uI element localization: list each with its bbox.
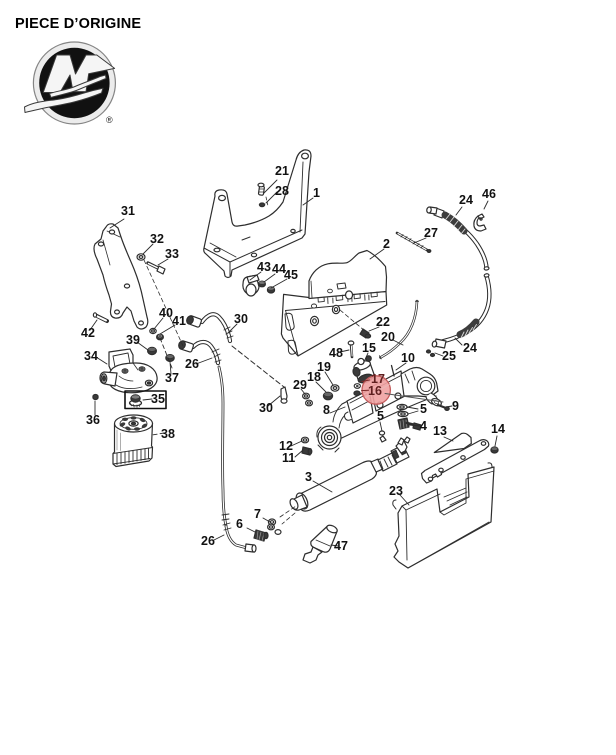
svg-text:38: 38 (161, 427, 175, 441)
svg-text:22: 22 (376, 315, 390, 329)
svg-text:9: 9 (452, 399, 459, 413)
svg-text:10: 10 (401, 351, 415, 365)
svg-text:30: 30 (234, 312, 248, 326)
svg-text:15: 15 (362, 341, 376, 355)
svg-text:11: 11 (282, 451, 295, 465)
svg-text:4: 4 (420, 419, 427, 433)
svg-text:18: 18 (307, 370, 321, 384)
svg-text:47: 47 (334, 539, 348, 553)
svg-text:45: 45 (284, 268, 298, 282)
svg-text:42: 42 (81, 326, 95, 340)
svg-text:40: 40 (159, 306, 173, 320)
svg-text:28: 28 (275, 184, 289, 198)
svg-text:1: 1 (313, 186, 320, 200)
svg-text:24: 24 (463, 341, 477, 355)
svg-text:PIECE D’ORIGINE: PIECE D’ORIGINE (15, 16, 141, 32)
svg-text:14: 14 (491, 422, 505, 436)
svg-text:5: 5 (420, 402, 427, 416)
svg-text:37: 37 (165, 371, 179, 385)
svg-text:2: 2 (383, 237, 390, 251)
svg-text:25: 25 (442, 349, 456, 363)
svg-text:36: 36 (86, 413, 100, 427)
svg-text:24: 24 (459, 193, 473, 207)
svg-text:®: ® (106, 115, 113, 125)
svg-text:5: 5 (377, 409, 384, 423)
svg-text:31: 31 (121, 204, 135, 218)
svg-text:32: 32 (150, 232, 164, 246)
svg-text:7: 7 (254, 507, 261, 521)
svg-text:26: 26 (201, 534, 215, 548)
svg-text:39: 39 (126, 333, 140, 347)
svg-text:29: 29 (293, 378, 307, 392)
svg-text:13: 13 (433, 424, 447, 438)
svg-text:34: 34 (84, 349, 98, 363)
svg-text:23: 23 (389, 484, 403, 498)
svg-text:8: 8 (323, 403, 330, 417)
svg-text:43: 43 (257, 260, 271, 274)
svg-text:20: 20 (381, 330, 395, 344)
svg-text:6: 6 (236, 517, 243, 531)
svg-text:41: 41 (172, 314, 186, 328)
svg-text:16: 16 (368, 384, 382, 398)
svg-text:21: 21 (275, 164, 289, 178)
svg-text:48: 48 (329, 346, 343, 360)
svg-text:33: 33 (165, 247, 179, 261)
svg-text:46: 46 (482, 187, 496, 201)
svg-text:35: 35 (151, 392, 165, 406)
svg-text:3: 3 (305, 470, 312, 484)
svg-text:26: 26 (185, 357, 199, 371)
svg-text:30: 30 (259, 401, 273, 415)
svg-text:27: 27 (424, 226, 438, 240)
